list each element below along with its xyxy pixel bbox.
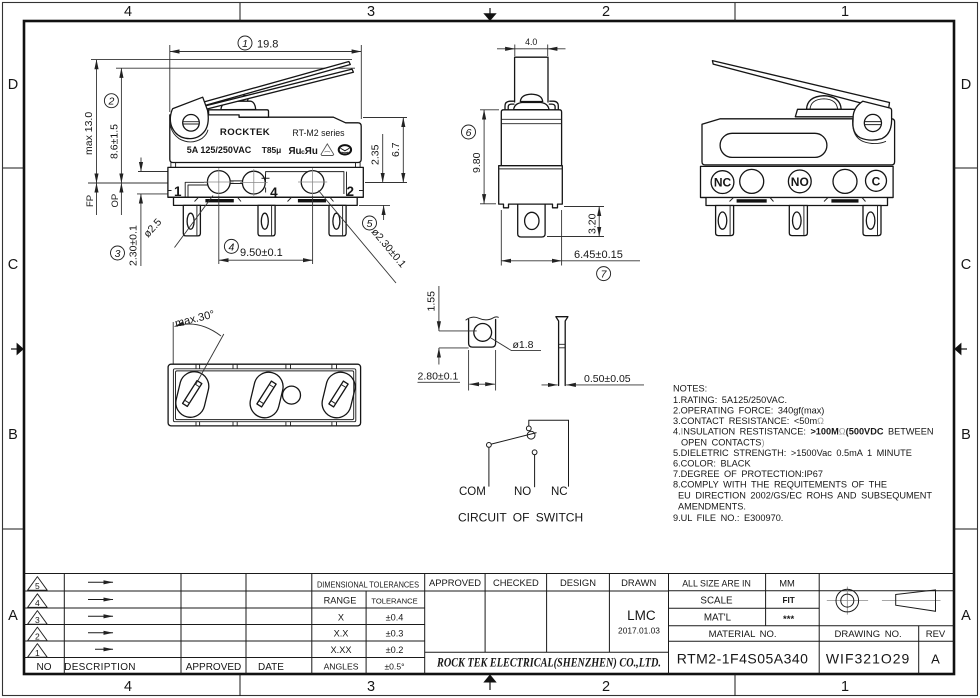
svg-text:9.80: 9.80 xyxy=(471,152,483,173)
svg-text:EU DIRECTION 2002/GS/EC ROHS A: EU DIRECTION 2002/GS/EC ROHS AND SUBSEQU… xyxy=(678,491,932,501)
svg-text:***: *** xyxy=(783,614,794,625)
svg-text:2: 2 xyxy=(35,632,40,642)
svg-text:APPROVED: APPROVED xyxy=(186,662,242,673)
svg-text:NO: NO xyxy=(514,486,531,498)
svg-text:3: 3 xyxy=(367,4,375,20)
svg-text:A: A xyxy=(931,652,940,667)
svg-text:X.X: X.X xyxy=(334,629,349,639)
svg-text:OP: OP xyxy=(110,194,121,208)
svg-text:X: X xyxy=(338,612,344,622)
svg-text:1: 1 xyxy=(35,648,40,658)
svg-text:NOTES:: NOTES: xyxy=(673,384,707,394)
svg-text:2.OPERATING FORCE: 340gf(max): 2.OPERATING FORCE: 340gf(max) xyxy=(673,406,824,416)
svg-text:NC: NC xyxy=(714,176,732,190)
svg-text:REV: REV xyxy=(926,629,946,640)
svg-text:ROCKTEK: ROCKTEK xyxy=(220,127,270,138)
svg-text:4: 4 xyxy=(124,679,132,695)
svg-text:DATE: DATE xyxy=(258,662,284,673)
svg-text:3.20: 3.20 xyxy=(586,213,598,234)
svg-text:2: 2 xyxy=(602,679,610,695)
svg-text:9.50±0.1: 9.50±0.1 xyxy=(240,247,283,259)
svg-text:2.80±0.1: 2.80±0.1 xyxy=(418,370,459,382)
svg-text:MM: MM xyxy=(779,577,795,588)
svg-text:Яu: Яu xyxy=(288,146,301,157)
svg-text:±0.2: ±0.2 xyxy=(386,645,404,655)
svg-text:CIRCUIT OF SWITCH: CIRCUIT OF SWITCH xyxy=(458,511,583,525)
svg-text:3.CONTACT RESISTANCE: <50mΩ: 3.CONTACT RESISTANCE: <50mΩ xyxy=(673,416,824,426)
svg-text:AMENDMENTS.: AMENDMENTS. xyxy=(678,502,746,512)
svg-text:6: 6 xyxy=(466,127,472,139)
svg-text:4: 4 xyxy=(35,598,40,608)
svg-text:7.DEGREE OF PROTECTION:IP67: 7.DEGREE OF PROTECTION:IP67 xyxy=(673,469,823,479)
svg-text:5: 5 xyxy=(367,218,373,230)
svg-text:2: 2 xyxy=(602,4,610,20)
svg-text:4: 4 xyxy=(228,241,234,253)
svg-text:RTM2-1F4S05A340: RTM2-1F4S05A340 xyxy=(677,651,809,667)
svg-text:2: 2 xyxy=(107,96,114,108)
svg-text:2.30±0.1: 2.30±0.1 xyxy=(128,225,140,266)
svg-text:6.COLOR: BLACK: 6.COLOR: BLACK xyxy=(673,459,751,469)
svg-text:B: B xyxy=(8,427,18,443)
svg-text:3: 3 xyxy=(115,248,121,260)
svg-text:T85μ: T85μ xyxy=(262,145,282,155)
svg-text:NC: NC xyxy=(551,486,568,498)
svg-text:OPEN CONTACTS): OPEN CONTACTS) xyxy=(681,437,765,447)
svg-text:FP: FP xyxy=(85,195,96,207)
svg-text:C: C xyxy=(872,174,881,188)
svg-text:TOLERANCE: TOLERANCE xyxy=(371,597,417,606)
svg-text:SCALE: SCALE xyxy=(700,595,733,606)
svg-text:FIT: FIT xyxy=(782,596,794,605)
svg-text:±0.3: ±0.3 xyxy=(386,629,404,639)
svg-text:8.6±1.5: 8.6±1.5 xyxy=(109,124,121,159)
svg-text:C: C xyxy=(961,257,971,273)
svg-text:6.45±0.15: 6.45±0.15 xyxy=(574,249,623,261)
svg-text:5: 5 xyxy=(35,581,40,591)
svg-text:NO: NO xyxy=(37,662,52,673)
svg-text:DESCRIPTION: DESCRIPTION xyxy=(64,662,136,673)
svg-text:max 13.0: max 13.0 xyxy=(83,112,95,155)
svg-text:1.55: 1.55 xyxy=(425,291,437,312)
svg-text:3: 3 xyxy=(367,679,375,695)
svg-text:A: A xyxy=(961,608,971,624)
svg-text:9.UL FILE NO.: E300970.: 9.UL FILE NO.: E300970. xyxy=(673,513,783,523)
svg-text:RT-M2 series: RT-M2 series xyxy=(292,128,345,138)
svg-text:D: D xyxy=(961,77,971,93)
svg-text:D: D xyxy=(8,77,18,93)
svg-text:1: 1 xyxy=(841,679,849,695)
svg-text:DRAWN: DRAWN xyxy=(621,577,656,588)
svg-text:8.COMPLY WITH THE REQUITEMENTS: 8.COMPLY WITH THE REQUITEMENTS OF THE xyxy=(673,480,887,490)
svg-text:ANGLES: ANGLES xyxy=(324,662,359,672)
svg-text:4: 4 xyxy=(124,4,132,20)
svg-text:MAT'L: MAT'L xyxy=(704,613,732,624)
svg-text:1.RATING: 5A125/250VAC.: 1.RATING: 5A125/250VAC. xyxy=(673,395,787,405)
svg-text:DIMENSIONAL TOLERANCES: DIMENSIONAL TOLERANCES xyxy=(317,579,419,589)
svg-text:4.INSULATION RESTISTANCE: >100: 4.INSULATION RESTISTANCE: >100MΩ(500VDC … xyxy=(673,427,933,437)
svg-text:±0.4: ±0.4 xyxy=(386,612,404,622)
svg-text:B: B xyxy=(961,427,971,443)
svg-text:1: 1 xyxy=(841,4,849,20)
svg-text:2.35: 2.35 xyxy=(370,144,382,165)
svg-text:ALL SIZE ARE IN: ALL SIZE ARE IN xyxy=(682,578,751,588)
svg-text:NO: NO xyxy=(791,175,809,189)
svg-text:CHECKED: CHECKED xyxy=(493,577,539,588)
svg-text:RANGE: RANGE xyxy=(324,596,357,606)
svg-text:APPROVED: APPROVED xyxy=(429,577,481,588)
svg-text:0.50±0.05: 0.50±0.05 xyxy=(584,373,631,385)
svg-text:ROCK TEK ELECTRICAL(SHENZHEN): ROCK TEK ELECTRICAL(SHENZHEN) CO.,LTD. xyxy=(436,656,661,670)
svg-text:A: A xyxy=(8,608,18,624)
svg-text:WIF321O29: WIF321O29 xyxy=(826,651,910,667)
svg-text:DRAWING NO.: DRAWING NO. xyxy=(835,629,902,640)
svg-text:ø1.8: ø1.8 xyxy=(513,339,534,351)
svg-text:1: 1 xyxy=(242,38,248,50)
svg-text:COM: COM xyxy=(459,486,486,498)
svg-text:19.8: 19.8 xyxy=(257,39,278,51)
svg-text:±0.5°: ±0.5° xyxy=(384,662,404,672)
svg-text:LMC: LMC xyxy=(627,608,656,623)
svg-text:6.7: 6.7 xyxy=(390,142,402,157)
svg-text:X.XX: X.XX xyxy=(331,645,352,655)
svg-text:5.DIELETRIC STRENGTH: >1500Vac: 5.DIELETRIC STRENGTH: >1500Vac 0.5mA 1 M… xyxy=(673,448,912,458)
svg-text:C: C xyxy=(8,257,18,273)
svg-text:3: 3 xyxy=(35,615,40,625)
svg-text:2017.01.03: 2017.01.03 xyxy=(618,626,660,636)
svg-text:DESIGN: DESIGN xyxy=(560,577,596,588)
svg-text:5A 125/250VAC: 5A 125/250VAC xyxy=(187,145,252,155)
svg-text:MATERIAL NO.: MATERIAL NO. xyxy=(709,629,777,640)
svg-text:4.0: 4.0 xyxy=(525,37,537,47)
